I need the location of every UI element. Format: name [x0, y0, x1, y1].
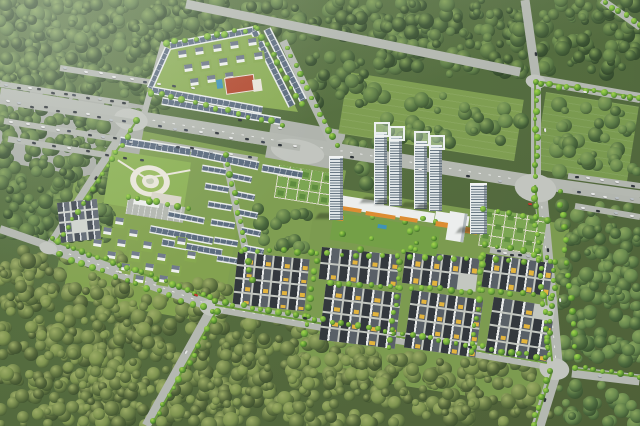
dark-townhouse-unit: [509, 329, 530, 344]
street-tree: [568, 295, 574, 301]
forest-tree: [313, 52, 320, 59]
street-tree: [422, 254, 428, 260]
forest-tree: [309, 368, 318, 377]
forest-tree: [554, 406, 564, 416]
forest-tree: [132, 370, 141, 379]
street-tree: [564, 84, 570, 90]
forest-tree: [346, 14, 357, 25]
parked-car: [51, 91, 55, 94]
forest-tree: [272, 403, 284, 415]
street-tree: [300, 341, 307, 348]
balcony-accent: [283, 277, 288, 281]
street-tree: [410, 332, 416, 338]
forest-tree: [113, 333, 126, 346]
balcony-accent: [352, 260, 358, 265]
street-tree: [226, 171, 233, 178]
street-tree: [544, 338, 550, 344]
street-tree: [521, 259, 527, 265]
street-tree: [419, 333, 426, 340]
street-tree: [190, 301, 197, 308]
forest-tree: [589, 48, 602, 61]
street-tree: [195, 343, 201, 349]
street-tree: [309, 96, 314, 101]
forest-tree: [324, 51, 336, 63]
dark-townhouse-unit: [288, 298, 306, 311]
forest-tree: [83, 25, 90, 32]
forest-tree: [120, 89, 128, 97]
forest-tree: [57, 350, 65, 358]
forest-tree: [129, 358, 137, 366]
forest-tree: [349, 0, 359, 8]
forest-tree: [625, 50, 636, 61]
forest-tree: [38, 159, 48, 169]
hedge-square: [312, 184, 319, 190]
forest-tree: [489, 410, 499, 420]
street-tree: [125, 278, 130, 283]
forest-tree: [399, 389, 406, 396]
parked-car: [31, 141, 35, 144]
street-tree: [356, 282, 362, 288]
parked-car: [63, 67, 67, 69]
dark-townhouse-unit: [513, 300, 534, 315]
forest-tree: [24, 270, 35, 281]
forest-tree: [266, 382, 274, 390]
dark-townhouse-unit: [488, 326, 509, 341]
balcony-accent: [526, 310, 532, 315]
forest-tree: [264, 364, 272, 372]
tower-crown: [414, 131, 430, 146]
street-tree: [532, 223, 537, 228]
street-tree: [506, 258, 511, 263]
forest-tree: [412, 399, 419, 406]
forest-tree: [486, 10, 495, 19]
street-tree: [68, 257, 75, 264]
street-tree: [175, 376, 182, 383]
forest-tree: [233, 398, 241, 406]
street-tree: [469, 349, 474, 354]
forest-tree: [446, 27, 455, 36]
street-tree: [561, 224, 568, 231]
forest-tree: [81, 317, 88, 324]
street-tree: [369, 282, 375, 288]
forest-tree: [246, 1, 257, 12]
street-tree: [590, 367, 595, 372]
balcony-accent: [263, 289, 268, 293]
forest-tree: [37, 186, 44, 193]
street-tree: [113, 150, 118, 155]
street-tree: [279, 68, 284, 73]
balcony-accent: [453, 334, 458, 339]
tower-crown: [389, 126, 405, 141]
street-tree: [540, 292, 547, 299]
street-tree: [338, 320, 344, 326]
forest-tree: [205, 342, 212, 349]
forest-tree: [511, 384, 527, 400]
forest-tree: [609, 308, 623, 322]
balcony-accent: [455, 320, 460, 325]
dark-townhouse-unit: [57, 202, 70, 212]
balcony-accent: [353, 310, 359, 314]
forest-tree: [45, 267, 54, 276]
street-tree: [200, 303, 207, 310]
balcony-accent: [280, 304, 285, 308]
balcony-accent: [374, 298, 380, 302]
forest-tree: [614, 287, 622, 295]
street-tree: [419, 285, 424, 290]
forest-tree: [0, 39, 9, 48]
street-tree: [550, 293, 555, 298]
forest-tree: [633, 235, 640, 242]
street-tree: [531, 292, 536, 297]
courtyard-tree: [339, 231, 345, 237]
street-tree: [285, 46, 290, 51]
forest-tree: [518, 50, 528, 60]
forest-tree: [0, 270, 8, 278]
forest-tree: [212, 397, 220, 405]
balcony-accent: [330, 275, 336, 280]
street-tree: [533, 108, 540, 115]
street-tree: [459, 289, 465, 295]
forest-tree: [53, 177, 63, 187]
street-tree: [95, 255, 100, 260]
street-tree: [330, 320, 335, 325]
dark-townhouse-unit: [271, 283, 289, 296]
dark-townhouse-unit: [361, 303, 380, 318]
street-tree: [329, 133, 336, 140]
street-tree: [489, 347, 494, 352]
balcony-accent: [509, 285, 514, 290]
dark-townhouse-unit: [291, 271, 309, 284]
street-tree: [185, 287, 190, 292]
balcony-accent: [415, 344, 420, 349]
street-tree: [214, 31, 220, 37]
forest-tree: [610, 106, 621, 117]
street-tree: [312, 317, 317, 322]
forest-tree: [336, 387, 345, 396]
forest-tree: [52, 402, 66, 416]
forest-tree: [6, 293, 14, 301]
street-tree: [90, 186, 96, 192]
forest-tree: [548, 9, 559, 20]
forest-tree: [579, 13, 587, 21]
forest-tree: [291, 4, 299, 12]
courtyard-tree: [431, 242, 438, 249]
forest-tree: [81, 330, 95, 344]
parked-car: [590, 193, 594, 196]
dark-townhouse-unit: [269, 296, 287, 309]
parked-car: [598, 375, 602, 378]
street-tree: [81, 201, 86, 206]
hedge-square: [302, 172, 309, 178]
dark-townhouse-unit: [402, 267, 421, 284]
forest-tree: [280, 341, 295, 356]
street-tree: [126, 194, 131, 199]
street-tree: [552, 285, 558, 291]
forest-tree: [309, 356, 321, 368]
forest-tree: [132, 24, 140, 32]
street-tree: [574, 354, 581, 361]
parked-car: [596, 209, 600, 212]
forest-tree: [439, 92, 447, 100]
dark-townhouse-unit: [342, 301, 361, 316]
forest-tree: [75, 120, 83, 128]
forest-tree: [576, 33, 590, 47]
forest-tree: [610, 159, 623, 172]
forest-tree: [120, 371, 131, 382]
forest-tree: [632, 283, 640, 292]
forest-tree: [514, 408, 521, 415]
street-tree: [636, 95, 640, 101]
street-tree: [110, 260, 116, 266]
street-tree: [366, 253, 372, 259]
forest-tree: [23, 307, 33, 317]
forest-tree: [100, 331, 108, 339]
forest-tree: [442, 388, 454, 400]
hedge-square: [321, 197, 328, 203]
forest-tree: [602, 416, 614, 426]
high-rise-tower: [329, 156, 343, 220]
street-tree: [299, 101, 306, 108]
dark-townhouse-unit: [490, 311, 511, 326]
forest-tree: [603, 261, 613, 271]
street-tree: [451, 256, 457, 262]
street-tree: [546, 346, 551, 351]
forest-tree: [111, 416, 126, 426]
high-rise-tower: [429, 145, 442, 211]
forest-tree: [142, 336, 155, 349]
street-tree: [524, 351, 529, 356]
forest-tree: [49, 61, 59, 71]
street-tree: [355, 322, 362, 329]
forest-tree: [68, 20, 76, 28]
street-tree: [353, 253, 359, 259]
street-tree: [615, 8, 621, 14]
street-tree: [113, 274, 119, 280]
forest-tree: [552, 164, 567, 179]
street-tree: [229, 181, 234, 186]
dark-townhouse-unit: [88, 230, 101, 240]
forest-tree: [290, 209, 301, 220]
forest-tree: [281, 9, 291, 19]
forest-tree: [436, 358, 444, 366]
balcony-accent: [528, 270, 533, 275]
street-tree: [387, 345, 392, 350]
street-tree: [187, 360, 193, 366]
street-tree: [222, 299, 229, 306]
balcony-accent: [521, 339, 527, 344]
street-tree: [139, 269, 145, 275]
street-tree: [56, 251, 63, 258]
forest-tree: [601, 294, 610, 303]
dark-townhouse-unit: [424, 322, 442, 337]
street-tree: [265, 307, 271, 313]
balcony-accent: [437, 317, 442, 322]
forest-tree: [388, 366, 396, 374]
street-tree: [479, 261, 486, 268]
street-tree: [100, 268, 105, 273]
forest-tree: [610, 228, 620, 238]
hedge-square: [504, 237, 511, 243]
street-tree: [627, 94, 633, 100]
forest-tree: [411, 60, 424, 73]
forest-tree: [139, 302, 148, 311]
street-tree: [395, 253, 401, 259]
forest-tree: [496, 40, 504, 48]
forest-tree: [102, 295, 115, 308]
forest-tree: [580, 102, 591, 113]
forest-tree: [595, 248, 606, 259]
balcony-accent: [546, 272, 551, 277]
balcony-accent: [421, 300, 426, 305]
street-tree: [571, 321, 576, 326]
courtyard-tree: [414, 241, 419, 246]
forest-tree: [186, 17, 200, 31]
forest-tree: [305, 411, 315, 421]
courtyard-tree: [407, 228, 414, 235]
forest-tree: [156, 416, 167, 426]
street-tree: [157, 411, 162, 416]
forest-tree: [388, 396, 401, 409]
dark-townhouse-unit: [426, 307, 444, 322]
forest-tree: [19, 182, 28, 191]
parked-car: [547, 248, 550, 252]
street-tree: [259, 117, 264, 122]
forest-tree: [355, 99, 363, 107]
street-tree: [476, 296, 483, 303]
street-tree: [471, 332, 476, 337]
forest-tree: [270, 218, 282, 230]
street-tree: [109, 156, 115, 162]
forest-tree: [556, 121, 568, 133]
forest-tree: [299, 34, 307, 42]
street-tree: [150, 418, 156, 424]
forest-tree: [404, 25, 419, 40]
forest-tree: [302, 377, 315, 390]
street-tree: [397, 267, 402, 272]
forest-tree: [414, 92, 429, 107]
street-tree: [569, 308, 576, 315]
street-tree: [560, 212, 566, 218]
street-tree: [176, 283, 182, 289]
dark-townhouse-unit: [274, 256, 292, 269]
street-tree: [61, 232, 66, 237]
street-tree: [174, 203, 180, 209]
parked-car: [630, 215, 634, 218]
forest-tree: [503, 377, 513, 387]
street-tree: [609, 5, 615, 11]
balcony-accent: [453, 266, 459, 271]
forest-tree: [29, 60, 39, 70]
balcony-accent: [439, 302, 444, 307]
street-tree: [143, 285, 150, 292]
street-tree: [133, 281, 138, 286]
parked-car: [577, 191, 581, 194]
balcony-accent: [415, 261, 421, 266]
forest-tree: [50, 365, 63, 378]
street-tree: [533, 354, 540, 361]
balcony-accent: [500, 335, 506, 340]
forest-tree: [343, 60, 356, 73]
parked-car: [278, 144, 282, 147]
street-tree: [566, 283, 572, 289]
forest-tree: [52, 3, 64, 15]
street-tree: [245, 258, 251, 264]
balcony-accent: [372, 262, 378, 267]
forest-tree: [82, 287, 90, 295]
forest-tree: [624, 269, 638, 283]
balcony-accent: [373, 312, 379, 316]
forest-tree: [287, 354, 301, 368]
forest-tree: [32, 408, 44, 420]
street-tree: [482, 241, 488, 247]
dark-townhouse-unit: [252, 281, 270, 294]
forest-tree: [289, 414, 304, 426]
forest-tree: [223, 412, 239, 426]
forest-tree: [44, 351, 54, 361]
street-tree: [621, 94, 626, 99]
forest-tree: [86, 47, 102, 63]
forest-tree: [33, 389, 43, 399]
street-tree: [249, 277, 255, 283]
balcony-accent: [413, 278, 419, 283]
street-tree: [327, 280, 333, 286]
street-tree: [232, 190, 238, 196]
forest-tree: [98, 27, 110, 39]
forest-tree: [534, 22, 550, 38]
parked-car: [238, 119, 242, 122]
forest-tree: [498, 416, 509, 426]
dark-townhouse-unit: [323, 298, 342, 313]
forest-tree: [25, 321, 37, 333]
courtyard-tree: [431, 236, 437, 242]
forest-tree: [465, 39, 475, 49]
forest-tree: [591, 350, 605, 364]
forest-tree: [258, 333, 270, 345]
forest-tree: [375, 1, 383, 9]
dark-townhouse-unit: [408, 305, 426, 320]
parked-car: [209, 150, 213, 153]
street-tree: [507, 245, 513, 251]
hedge-square: [526, 240, 533, 246]
pool: [216, 79, 223, 89]
forest-tree: [140, 389, 147, 396]
street-tree: [477, 281, 482, 286]
street-tree: [428, 335, 433, 340]
balcony-accent: [523, 324, 529, 329]
forest-tree: [36, 330, 46, 340]
street-tree: [212, 298, 217, 303]
balcony-accent: [511, 268, 516, 273]
forest-tree: [359, 176, 374, 191]
forest-tree: [613, 249, 628, 264]
forest-tree: [618, 125, 627, 134]
street-tree: [539, 266, 544, 271]
street-tree: [547, 330, 553, 336]
street-tree: [294, 249, 301, 256]
street-tree: [534, 89, 541, 96]
street-tree: [493, 256, 499, 262]
parked-car: [37, 88, 41, 90]
street-tree: [572, 365, 578, 371]
parked-car: [64, 92, 68, 95]
street-tree: [240, 230, 245, 235]
street-tree: [132, 267, 139, 274]
parked-car: [113, 136, 117, 139]
forest-tree: [64, 0, 73, 8]
balcony-accent: [526, 287, 531, 292]
street-tree: [394, 303, 399, 308]
forest-tree: [392, 17, 406, 31]
